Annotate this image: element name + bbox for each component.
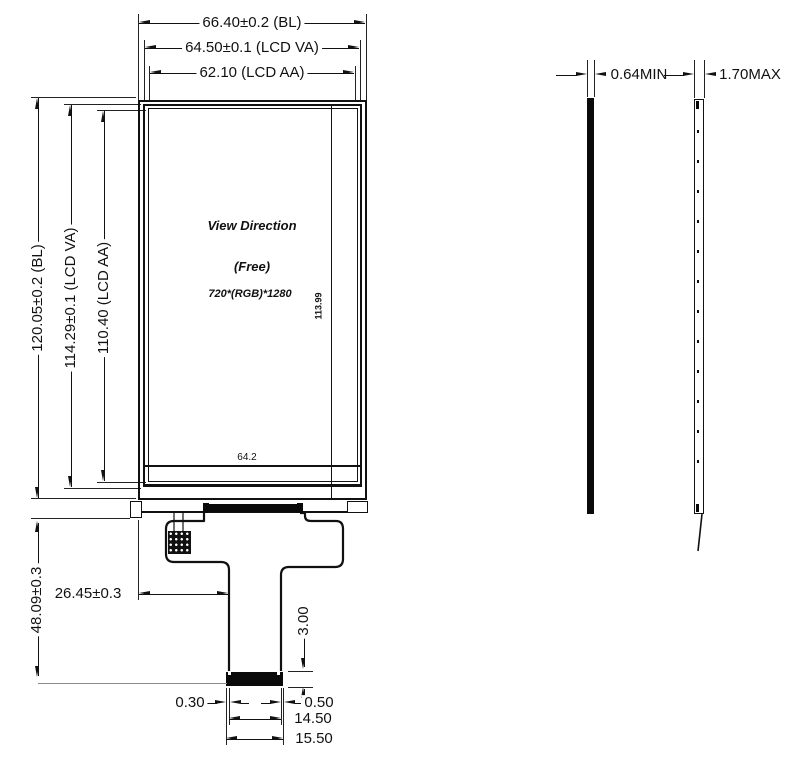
dim-label-aa-height: 110.40 (LCD AA) [96,239,112,357]
extension-line [281,688,282,725]
arrowhead [354,20,365,24]
module-side-top-mark [696,101,699,109]
arrowhead [595,72,606,76]
arrowhead [101,111,105,122]
extension-line [594,60,595,97]
arrowhead [150,70,161,74]
dim-label-bl-height: 120.05±0.2 (BL) [30,241,46,354]
dim-label-va-height: 114.29±0.1 (LCD VA) [63,224,79,371]
extension-line [704,60,705,98]
dim-label-aa-width: 62.10 (LCD AA) [196,65,307,81]
arrowhead [683,72,694,76]
connector-width-label: 14.50 [291,711,335,727]
panel-side-profile [587,98,594,514]
inner-height-label: 113.99 [314,289,323,322]
arrowhead [348,45,359,49]
drawing-sheet: 66.40±0.2 (BL) 64.50±0.1 (LCD VA) 62.10 … [0,0,800,759]
arrowhead [270,700,281,704]
arrowhead [139,20,150,24]
arrowhead [35,98,39,109]
fpc-component [168,531,191,554]
module-side-bottom-mark [696,504,699,512]
extension-line [138,520,139,600]
arrowhead [68,476,72,487]
arrowhead [343,70,354,74]
arrowhead [145,45,156,49]
connector-notch [277,672,280,675]
dimension-line [295,703,301,704]
arrowhead [705,72,716,76]
arrowhead [270,716,281,720]
thickness-max-label: 1.70MAX [716,67,784,83]
fpc-length-label: 48.09±0.3 [29,564,45,637]
resolution-label: 720*(RGB)*1280 [205,289,294,301]
extension-line [587,60,588,97]
arrowhead [226,736,237,740]
dim-label-bl-width: 66.40±0.2 (BL) [199,15,304,31]
arrowhead [35,487,39,498]
arrowhead [101,470,105,481]
arrowhead [217,591,228,595]
arrowhead [284,700,295,704]
tail-width-label: 15.50 [292,731,336,747]
connector-notch [228,672,231,675]
arrowhead [272,736,283,740]
arrowhead [139,591,150,595]
arrowhead [35,521,39,532]
arrowhead [301,658,305,669]
dimension-line [556,75,577,76]
extension-line [31,518,130,519]
thickness-min-label: 0.64MIN [608,67,671,83]
right-margin-label: 0.50 [301,695,336,711]
module-side-ticks [697,130,700,480]
arrowhead [230,700,241,704]
fpc-offset-label: 26.45±0.3 [52,586,125,602]
arrowhead [215,700,226,704]
extension-line-gray [38,683,227,684]
extension-line [283,688,284,745]
left-margin-label: 0.30 [172,695,207,711]
inner-width-label: 64.2 [234,453,259,464]
dim-label-va-width: 64.50±0.1 (LCD VA) [182,40,322,56]
arrowhead [68,105,72,116]
extension-line [288,671,313,672]
connector-height-label: 3.00 [296,603,312,638]
view-direction-label: View Direction [204,219,299,233]
arrowhead [35,666,39,677]
fpc-outline [0,0,800,759]
free-mode-label: (Free) [231,260,273,274]
arrowhead [229,716,240,720]
extension-line [694,60,695,98]
dimension-line [139,594,228,595]
fpc-connector [226,672,283,686]
fpc-stiffener-bar [203,504,303,512]
fpc-stiffener-end [297,503,303,513]
dimension-line [241,703,249,704]
arrowhead [576,72,587,76]
fpc-stiffener-end [203,503,209,513]
